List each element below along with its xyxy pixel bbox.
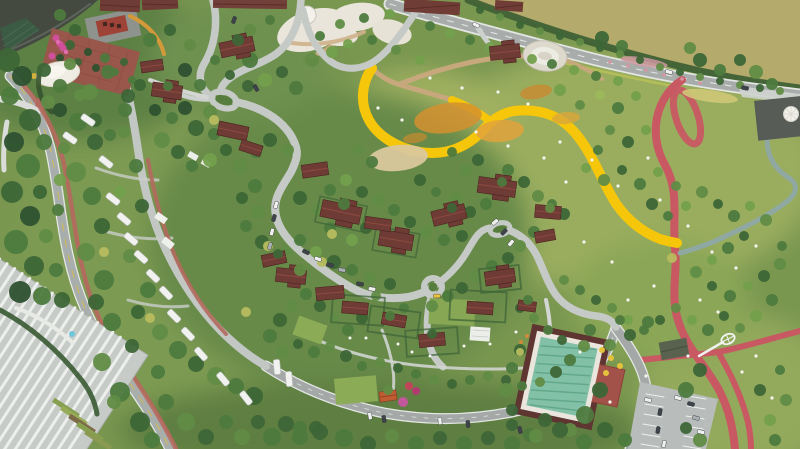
- park-lamps: [376, 106, 379, 109]
- tree: [131, 305, 145, 319]
- bougainvillea-pink: [49, 53, 56, 60]
- tree: [383, 385, 393, 395]
- pool-umbrellas-yellow: [599, 347, 605, 353]
- tree: [636, 56, 644, 64]
- tree: [49, 263, 63, 277]
- tree: [101, 65, 115, 79]
- park-lamps: [754, 354, 757, 357]
- umbrella-magenta: [412, 387, 420, 395]
- tree: [605, 125, 615, 135]
- tree: [538, 413, 552, 427]
- tree: [276, 66, 288, 78]
- park-lamps: [474, 130, 477, 133]
- tree: [125, 339, 139, 353]
- tree: [420, 226, 432, 238]
- tree: [198, 429, 214, 445]
- tree: [693, 363, 707, 377]
- tree: [273, 313, 287, 327]
- tree: [273, 249, 283, 259]
- tree: [693, 53, 707, 67]
- tree: [766, 78, 778, 90]
- pool-umbrellas-yellow: [617, 363, 623, 369]
- car: [466, 420, 470, 428]
- tree: [393, 363, 403, 373]
- tree: [325, 341, 335, 351]
- tree: [749, 65, 763, 79]
- tree: [39, 229, 53, 243]
- tree: [83, 187, 101, 205]
- tree: [93, 353, 111, 371]
- tree: [177, 413, 195, 431]
- tree: [145, 313, 155, 323]
- pool-umbrellas-yellow: [608, 355, 614, 361]
- tree: [356, 186, 368, 198]
- tree: [293, 421, 307, 435]
- tree: [502, 164, 514, 176]
- tree: [144, 432, 160, 448]
- park-lamps: [400, 118, 403, 121]
- tree: [612, 102, 624, 114]
- small-pond: [69, 331, 75, 337]
- tree: [506, 419, 518, 431]
- park-lamps: [608, 400, 611, 403]
- riverside-pink-flowers: [644, 68, 648, 72]
- tree: [359, 13, 369, 23]
- tree: [616, 50, 624, 58]
- tree: [739, 231, 749, 241]
- tree: [550, 366, 562, 378]
- umbrella-red: [405, 382, 413, 390]
- tree: [87, 134, 103, 150]
- tree: [523, 295, 533, 305]
- tree: [308, 346, 320, 358]
- tree: [429, 375, 439, 385]
- tree: [431, 187, 441, 197]
- tree: [624, 329, 636, 341]
- tree: [591, 71, 601, 81]
- tree: [442, 290, 454, 302]
- park-lamps: [460, 86, 463, 89]
- garden-furniture-dots: [515, 331, 518, 334]
- tree: [69, 24, 81, 36]
- resort-gray-building: [103, 22, 108, 27]
- tree: [305, 53, 319, 67]
- rv-camper: [285, 371, 293, 387]
- tree: [663, 211, 673, 221]
- tree: [118, 126, 130, 138]
- tree: [4, 230, 28, 254]
- tree: [278, 416, 294, 432]
- tree: [499, 383, 513, 397]
- tree: [234, 429, 250, 445]
- tree: [178, 101, 192, 115]
- tree: [263, 133, 277, 147]
- tree: [12, 66, 32, 86]
- tree: [536, 27, 544, 35]
- tree: [114, 186, 126, 198]
- tree: [676, 68, 684, 76]
- tree: [135, 199, 149, 213]
- tree: [527, 54, 537, 64]
- tree: [375, 357, 385, 367]
- tree: [719, 311, 729, 321]
- garden-furniture-dots: [429, 355, 432, 358]
- tree: [4, 132, 24, 152]
- tree: [219, 415, 233, 429]
- tree: [615, 315, 625, 325]
- tree: [1, 181, 23, 203]
- tree: [327, 229, 337, 239]
- car: [433, 294, 440, 298]
- tree: [326, 46, 338, 58]
- garden-furniture-dots: [365, 337, 368, 340]
- tree: [240, 220, 252, 232]
- tree: [129, 159, 143, 173]
- tree: [543, 325, 553, 335]
- tree: [64, 58, 76, 70]
- tree: [581, 163, 591, 173]
- tree: [164, 24, 176, 36]
- riverside-pink-flowers: [698, 81, 702, 85]
- tree: [210, 55, 220, 65]
- tree: [529, 313, 539, 323]
- park-lamps: [590, 158, 593, 161]
- tree: [655, 315, 665, 325]
- park-lamps: [578, 350, 581, 353]
- tree: [300, 288, 312, 300]
- park-lamps: [710, 250, 713, 253]
- tree: [84, 48, 92, 56]
- white-pergola: [470, 326, 491, 341]
- tree: [518, 176, 530, 188]
- poolside-flowers-orange: [519, 340, 523, 344]
- tree: [77, 243, 95, 261]
- tree: [384, 278, 396, 290]
- tree: [433, 431, 447, 445]
- tree: [575, 285, 585, 295]
- tree: [140, 282, 156, 298]
- tree: [777, 241, 787, 251]
- tree: [591, 295, 601, 305]
- tree: [154, 132, 170, 148]
- tree: [58, 142, 70, 154]
- tree: [481, 431, 495, 445]
- park-lamps: [770, 396, 773, 399]
- tree: [465, 35, 475, 45]
- tree: [388, 204, 400, 216]
- tree: [529, 429, 543, 443]
- tree: [364, 272, 376, 284]
- tree: [656, 63, 664, 71]
- tree: [506, 362, 518, 374]
- tree: [766, 294, 778, 306]
- bougainvillea-light: [64, 50, 68, 54]
- tree: [476, 6, 484, 14]
- tree: [754, 384, 766, 396]
- tree: [613, 76, 623, 86]
- tree: [241, 307, 251, 317]
- tree: [37, 63, 51, 77]
- tree: [335, 19, 345, 29]
- tree: [760, 214, 772, 226]
- tree: [774, 258, 786, 270]
- garden-furniture-dots: [349, 337, 352, 340]
- tree: [575, 100, 585, 110]
- tree: [286, 300, 298, 312]
- tree: [1, 87, 19, 105]
- tree: [194, 79, 206, 91]
- park-lamps: [686, 354, 689, 357]
- tree: [743, 281, 753, 291]
- park-lamps: [716, 310, 719, 313]
- tree: [556, 32, 564, 40]
- tree: [597, 422, 613, 438]
- tree: [554, 84, 566, 96]
- tree: [263, 428, 281, 446]
- tree: [671, 303, 681, 313]
- tree: [225, 70, 235, 80]
- tree: [584, 324, 596, 336]
- tree: [780, 394, 792, 406]
- tree: [134, 79, 146, 91]
- tree: [94, 218, 110, 234]
- tree: [617, 165, 627, 175]
- tree: [764, 414, 776, 426]
- tree: [756, 84, 764, 92]
- tree: [33, 185, 47, 199]
- tree: [52, 204, 64, 216]
- tree: [236, 192, 248, 204]
- tree: [671, 181, 681, 191]
- tree: [687, 315, 697, 325]
- park-lamps: [740, 370, 743, 373]
- park-lamps: [652, 284, 655, 287]
- tree: [713, 199, 723, 209]
- aerial-photo-canvas: [0, 0, 800, 449]
- tree: [385, 9, 395, 19]
- tree: [151, 365, 165, 379]
- tree: [426, 300, 438, 312]
- tree: [653, 167, 663, 177]
- park-lamps: [506, 144, 509, 147]
- tree: [103, 313, 121, 331]
- tree: [693, 433, 707, 447]
- tree: [357, 361, 367, 371]
- tree: [557, 335, 567, 345]
- tree: [745, 201, 755, 211]
- tree: [569, 65, 579, 75]
- tree: [716, 77, 724, 85]
- tree: [92, 64, 100, 72]
- park-lamps: [564, 180, 567, 183]
- tree: [53, 103, 67, 117]
- tree: [220, 144, 232, 156]
- tree: [576, 406, 594, 424]
- tree: [118, 103, 132, 117]
- tree: [684, 42, 696, 54]
- tree: [576, 38, 584, 46]
- tree: [631, 91, 641, 101]
- tree: [324, 184, 336, 196]
- tree: [263, 329, 277, 343]
- tree: [616, 40, 628, 52]
- tree: [143, 33, 157, 47]
- rv-camper: [273, 359, 281, 375]
- tree: [592, 382, 608, 398]
- tree: [607, 303, 617, 313]
- tree: [769, 434, 781, 446]
- tree: [598, 174, 610, 186]
- tree: [385, 311, 395, 321]
- tree: [166, 112, 178, 124]
- tree: [294, 234, 306, 246]
- tree: [552, 422, 568, 438]
- park-lamps: [526, 102, 529, 105]
- tree: [506, 404, 518, 416]
- tree: [622, 136, 634, 148]
- tree: [282, 144, 294, 156]
- park-lamps: [734, 266, 737, 269]
- tree: [293, 191, 307, 205]
- tree: [496, 13, 504, 21]
- tree: [340, 350, 352, 362]
- tree: [233, 159, 247, 173]
- tree: [734, 54, 746, 66]
- tree: [65, 40, 75, 50]
- tree: [696, 73, 704, 81]
- tree: [385, 429, 399, 443]
- garden-furniture-dots: [489, 343, 492, 346]
- park-lamps: [610, 260, 613, 263]
- tree: [120, 58, 128, 66]
- tree: [251, 205, 265, 219]
- tree: [163, 81, 173, 91]
- tree: [158, 394, 174, 410]
- bougainvillea-light: [56, 40, 60, 44]
- tree: [203, 153, 217, 167]
- tree: [41, 95, 55, 109]
- tree: [447, 203, 457, 213]
- tree: [314, 300, 326, 312]
- park-lamps: [644, 374, 647, 377]
- tree: [338, 198, 350, 210]
- park-lamps: [686, 224, 689, 227]
- park-lamps: [616, 184, 619, 187]
- tree: [149, 104, 161, 116]
- tree: [618, 433, 632, 447]
- park-lamps: [698, 298, 701, 301]
- tree: [232, 34, 244, 46]
- tree: [276, 346, 288, 358]
- tree: [178, 63, 192, 77]
- tree: [642, 316, 654, 328]
- tree: [346, 234, 358, 246]
- park-lamps: [658, 198, 661, 201]
- tree: [564, 354, 576, 366]
- tree: [472, 154, 484, 166]
- tree: [100, 53, 110, 63]
- tree: [107, 395, 121, 409]
- tree: [438, 234, 450, 246]
- tree: [294, 264, 306, 276]
- tree: [391, 45, 401, 55]
- car: [438, 417, 442, 425]
- tree: [690, 266, 702, 278]
- tree: [735, 323, 745, 333]
- tree: [634, 178, 646, 190]
- tree: [427, 329, 437, 339]
- tree: [99, 247, 109, 257]
- tree: [312, 424, 328, 440]
- tree: [33, 287, 51, 305]
- tree: [447, 147, 457, 157]
- pool-umbrellas-yellow: [603, 370, 609, 376]
- tree: [604, 339, 616, 351]
- tree: [24, 256, 44, 276]
- tree: [186, 160, 198, 172]
- tree: [251, 415, 265, 429]
- tree: [776, 87, 784, 95]
- tree: [366, 156, 378, 168]
- tree: [707, 255, 717, 265]
- tree: [54, 9, 66, 21]
- cabin-roofs: [342, 301, 369, 315]
- tree: [728, 210, 740, 222]
- tree: [258, 73, 272, 87]
- tree: [595, 90, 605, 100]
- bougainvillea-bush: [398, 397, 408, 407]
- tree: [680, 422, 692, 434]
- tree: [593, 145, 603, 155]
- roundabout-green: [429, 283, 438, 292]
- tree: [372, 194, 384, 206]
- tree: [559, 275, 569, 285]
- tree: [414, 174, 426, 186]
- tree: [248, 179, 262, 193]
- park-lamps: [646, 156, 649, 159]
- tree: [517, 381, 527, 391]
- tree: [371, 291, 381, 301]
- tree: [445, 28, 455, 38]
- tree: [415, 55, 425, 65]
- tree: [702, 324, 714, 336]
- tree: [722, 242, 734, 254]
- tree: [516, 348, 524, 356]
- garden-furniture-dots: [397, 343, 400, 346]
- poolside-flowers-orange: [525, 334, 529, 338]
- tree: [667, 253, 677, 263]
- tree: [66, 162, 86, 182]
- tree: [465, 375, 475, 385]
- tree: [758, 270, 770, 282]
- riverside-pink-flowers: [680, 77, 684, 81]
- tree: [9, 281, 31, 303]
- tree: [516, 21, 524, 29]
- tree: [404, 216, 416, 228]
- tree: [353, 145, 363, 155]
- tree: [340, 174, 352, 186]
- tree: [19, 109, 41, 131]
- cabin-roofs: [315, 285, 344, 300]
- tree: [104, 129, 116, 141]
- resort-gray-building: [117, 24, 122, 29]
- tree: [456, 282, 468, 294]
- tree: [343, 39, 353, 49]
- park-lamps: [542, 156, 545, 159]
- tree: [54, 292, 70, 308]
- tree: [56, 54, 64, 62]
- tree: [724, 290, 736, 302]
